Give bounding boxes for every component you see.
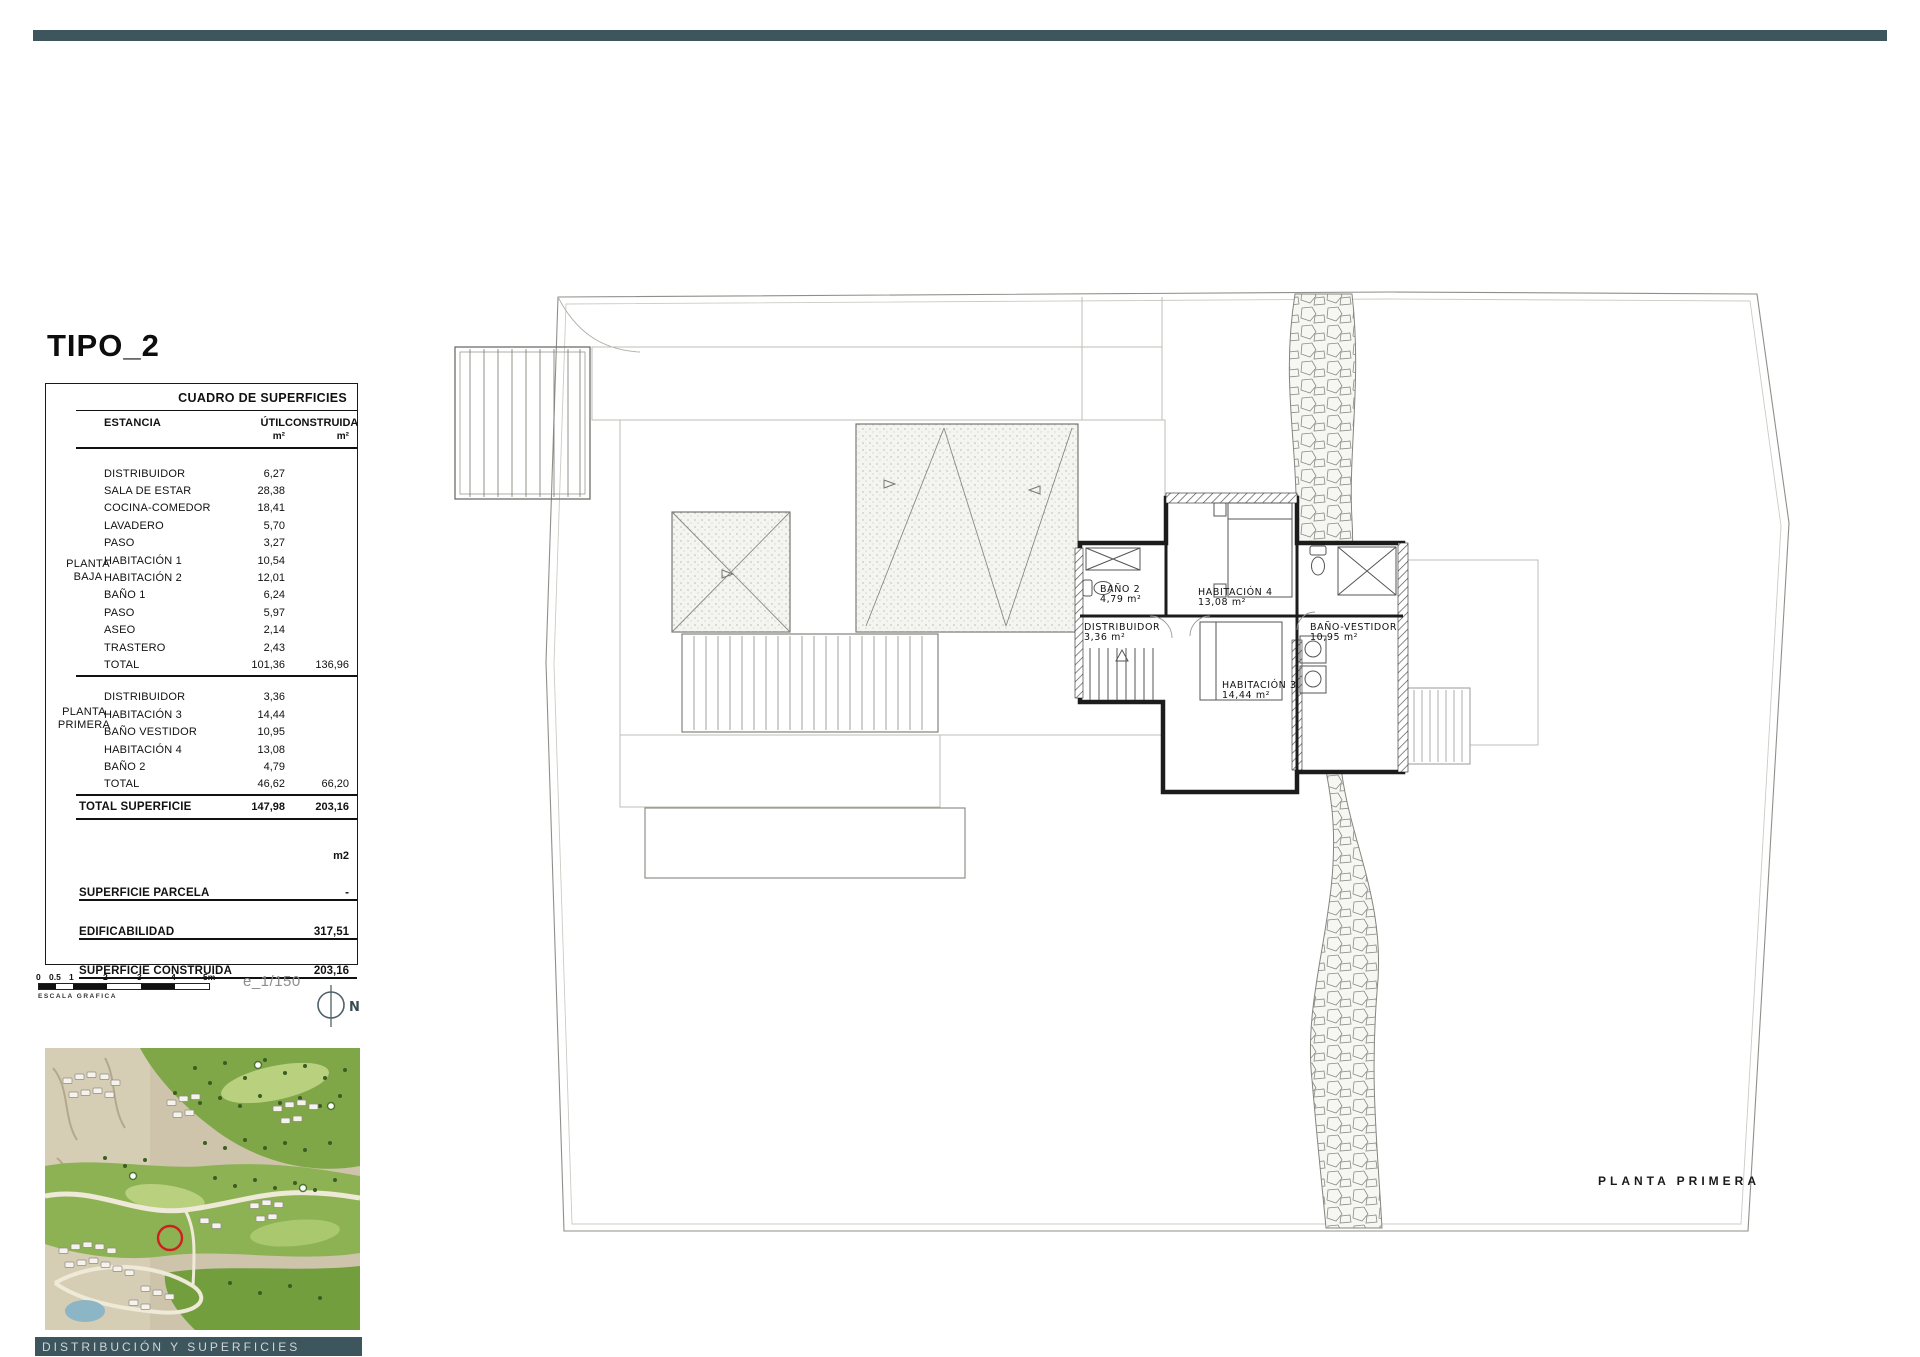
table-row: BAÑO 16,24 (46, 587, 357, 604)
scale-ticks: 0 0.5 1 2 3 4 5m (38, 972, 248, 982)
footer-bar: DISTRIBUCIÓN Y SUPERFICIES (35, 1337, 362, 1356)
divider (76, 447, 357, 449)
table-row: TRASTERO2,43 (46, 639, 357, 656)
plan-caption: PLANTA PRIMERA (1598, 1174, 1760, 1188)
group-label-planta-baja: PLANTA BAJA (60, 558, 116, 584)
deck-pergola (682, 634, 938, 732)
col-construida: CONSTRUIDA (285, 417, 357, 429)
group-label-planta-primera: PLANTA PRIMERA (56, 706, 112, 732)
planta-primera-rows: DISTRIBUIDOR3,36 HABITACIÓN 314,44 BAÑO … (46, 689, 357, 793)
surface-table-title: CUADRO DE SUPERFICIES (46, 384, 357, 405)
room-area-bano-vestidor: 10,95 m² (1310, 632, 1358, 643)
table-total-row: TOTAL101,36136,96 (46, 656, 357, 673)
table-row: PASO5,97 (46, 604, 357, 621)
table-unit-row: m² m² (46, 430, 357, 443)
table-row: COCINA-COMEDOR18,41 (46, 500, 357, 517)
summary-unit: m2 (46, 850, 357, 862)
unit-construida: m² (285, 431, 357, 442)
table-row: LAVADERO5,70 (46, 517, 357, 534)
scale-caption: ESCALA GRAFICA (38, 993, 248, 1000)
first-floor-rooms: BAÑO 2 4,79 m² HABITACIÓN 4 13,08 m² DIS… (1075, 493, 1408, 792)
footer-title: DISTRIBUCIÓN Y SUPERFICIES (35, 1340, 300, 1354)
table-row: DISTRIBUIDOR3,36 (46, 689, 357, 706)
table-total-row: TOTAL46,6266,20 (46, 776, 357, 793)
hatched-wall (1075, 548, 1083, 698)
scale-ratio-label: e_1/150 (243, 973, 301, 990)
room-area-habitacion3: 14,44 m² (1222, 690, 1270, 701)
plan-sheet: TIPO_2 CUADRO DE SUPERFICIES ESTANCIA ÚT… (0, 0, 1920, 1357)
summary-row-edificabilidad: EDIFICABILIDAD 317,51 (79, 921, 357, 940)
table-row: BAÑO 24,79 (46, 758, 357, 775)
roof-secondary (672, 512, 790, 632)
north-arrow-icon: N (312, 983, 364, 1029)
floor-plan: BAÑO 2 4,79 m² HABITACIÓN 4 13,08 m² DIS… (430, 285, 1800, 1245)
pergola (455, 347, 590, 499)
scale-bar (38, 983, 210, 990)
hatched-wall (1166, 493, 1297, 503)
divider (76, 818, 357, 820)
room-area-bano2: 4,79 m² (1100, 594, 1141, 605)
site-location-map (45, 1048, 360, 1330)
total-superficie-row: TOTAL SUPERFICIE 147,98 203,16 (46, 796, 357, 817)
room-area-distribuidor: 3,36 m² (1084, 632, 1125, 643)
table-row: DISTRIBUIDOR6,27 (46, 465, 357, 482)
north-label: N (349, 1000, 360, 1015)
top-accent-bar (33, 30, 1887, 41)
col-util: ÚTIL (233, 417, 285, 429)
roof-main (856, 424, 1078, 632)
pool-outline (645, 808, 965, 878)
side-deck (1406, 688, 1470, 764)
table-row: PASO3,27 (46, 535, 357, 552)
room-area-habitacion4: 13,08 m² (1198, 597, 1246, 608)
graphic-scale: 0 0.5 1 2 3 4 5m ESCALA GRAFICA (38, 972, 248, 1006)
divider (76, 410, 357, 411)
table-row: SALA DE ESTAR28,38 (46, 482, 357, 499)
col-estancia: ESTANCIA (104, 417, 233, 429)
summary-row-parcela: SUPERFICIE PARCELA - (79, 882, 357, 901)
surface-table: CUADRO DE SUPERFICIES ESTANCIA ÚTIL CONS… (45, 383, 358, 965)
page-title: TIPO_2 (47, 328, 160, 364)
table-row: ASEO2,14 (46, 622, 357, 639)
table-header-row: ESTANCIA ÚTIL CONSTRUIDA (46, 415, 357, 430)
hatched-wall (1398, 543, 1408, 772)
unit-util: m² (233, 431, 285, 442)
table-row: HABITACIÓN 413,08 (46, 741, 357, 758)
